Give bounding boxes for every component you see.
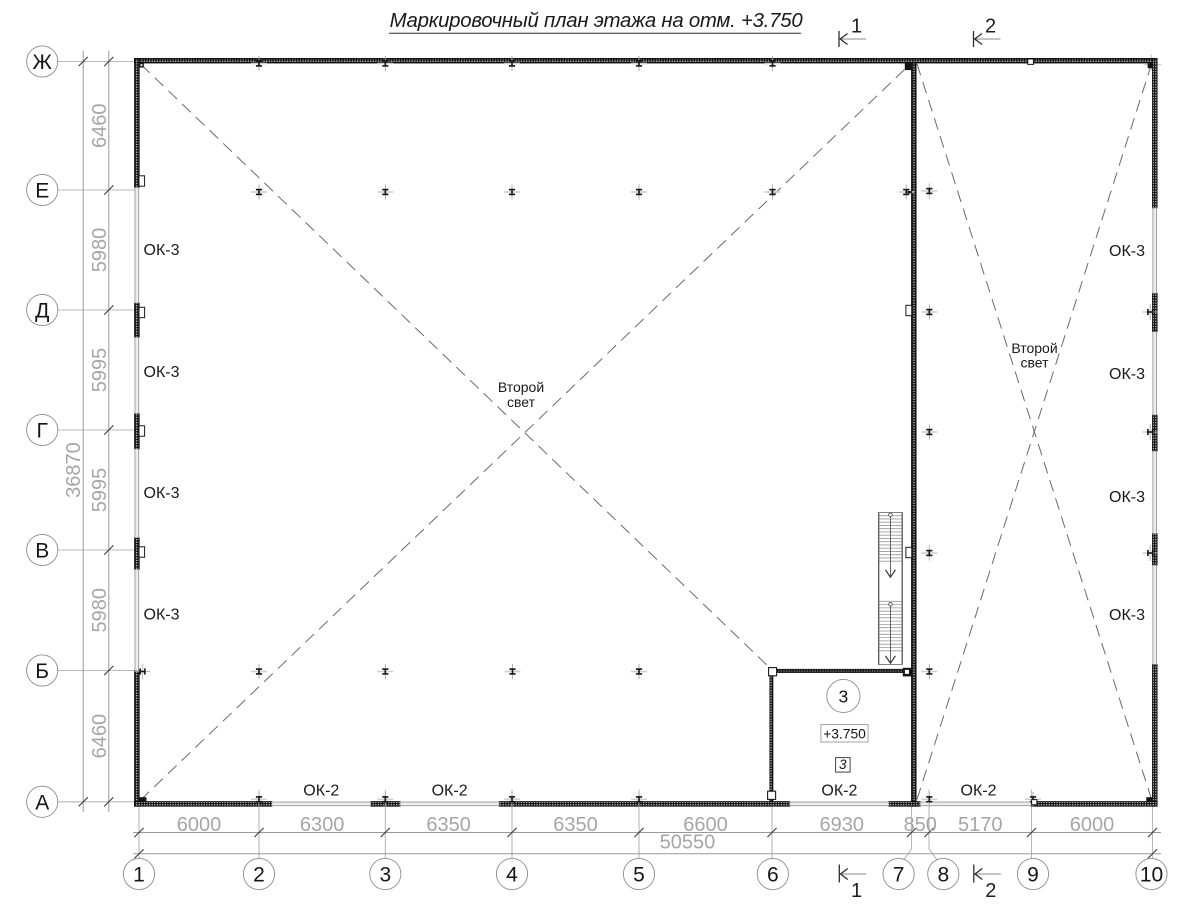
svg-text:6300: 6300 [300, 814, 345, 836]
svg-text:ОК-2: ОК-2 [303, 782, 339, 799]
svg-text:3: 3 [839, 757, 847, 772]
svg-text:5995: 5995 [89, 468, 111, 513]
svg-text:6000: 6000 [1070, 814, 1115, 836]
svg-text:6: 6 [767, 864, 779, 887]
svg-text:А: А [35, 791, 49, 814]
svg-text:1: 1 [851, 16, 862, 38]
svg-text:ОК-3: ОК-3 [1109, 607, 1145, 624]
svg-text:1: 1 [133, 864, 145, 887]
svg-text:5170: 5170 [958, 814, 1003, 836]
svg-text:Г: Г [37, 420, 48, 443]
svg-text:2: 2 [985, 16, 996, 38]
svg-text:6930: 6930 [820, 814, 865, 836]
svg-text:5980: 5980 [89, 588, 111, 633]
svg-text:ОК-3: ОК-3 [1109, 243, 1145, 260]
svg-text:ОК-2: ОК-2 [961, 782, 997, 799]
svg-text:+3.750: +3.750 [823, 727, 866, 742]
svg-text:850: 850 [904, 814, 937, 836]
svg-text:6460: 6460 [89, 104, 111, 149]
svg-text:ОК-3: ОК-3 [144, 485, 180, 502]
svg-text:Ж: Ж [33, 51, 53, 74]
svg-text:ОК-3: ОК-3 [1109, 489, 1145, 506]
svg-text:В: В [35, 540, 49, 563]
svg-text:6350: 6350 [426, 814, 471, 836]
svg-text:Б: Б [35, 660, 49, 683]
svg-text:ОК-2: ОК-2 [821, 782, 857, 799]
svg-text:Маркировочный план этажа на от: Маркировочный план этажа на отм. +3.750 [390, 10, 804, 32]
svg-text:5: 5 [633, 864, 645, 887]
svg-text:3: 3 [839, 686, 849, 706]
svg-text:ОК-3: ОК-3 [1109, 366, 1145, 383]
svg-text:свет: свет [507, 394, 536, 410]
svg-text:2: 2 [985, 880, 996, 900]
svg-text:свет: свет [1020, 355, 1049, 371]
svg-text:9: 9 [1027, 864, 1039, 887]
svg-text:3: 3 [379, 864, 391, 887]
svg-text:8: 8 [937, 864, 949, 887]
svg-text:Е: Е [35, 180, 49, 203]
svg-text:ОК-3: ОК-3 [144, 607, 180, 624]
svg-text:ОК-3: ОК-3 [144, 242, 180, 259]
svg-text:5995: 5995 [89, 348, 111, 393]
svg-text:ОК-2: ОК-2 [432, 782, 468, 799]
svg-text:4: 4 [506, 864, 518, 887]
svg-text:6460: 6460 [89, 714, 111, 759]
svg-text:36870: 36870 [63, 442, 85, 498]
svg-text:6350: 6350 [553, 814, 598, 836]
svg-text:2: 2 [253, 864, 265, 887]
svg-text:10: 10 [1140, 864, 1163, 887]
svg-text:ОК-3: ОК-3 [144, 364, 180, 381]
svg-text:6000: 6000 [177, 814, 222, 836]
svg-text:Д: Д [35, 300, 49, 323]
svg-text:50550: 50550 [660, 832, 716, 854]
svg-text:1: 1 [851, 880, 862, 900]
svg-text:Второй: Второй [498, 379, 544, 395]
svg-text:5980: 5980 [89, 228, 111, 273]
svg-text:7: 7 [893, 864, 905, 887]
